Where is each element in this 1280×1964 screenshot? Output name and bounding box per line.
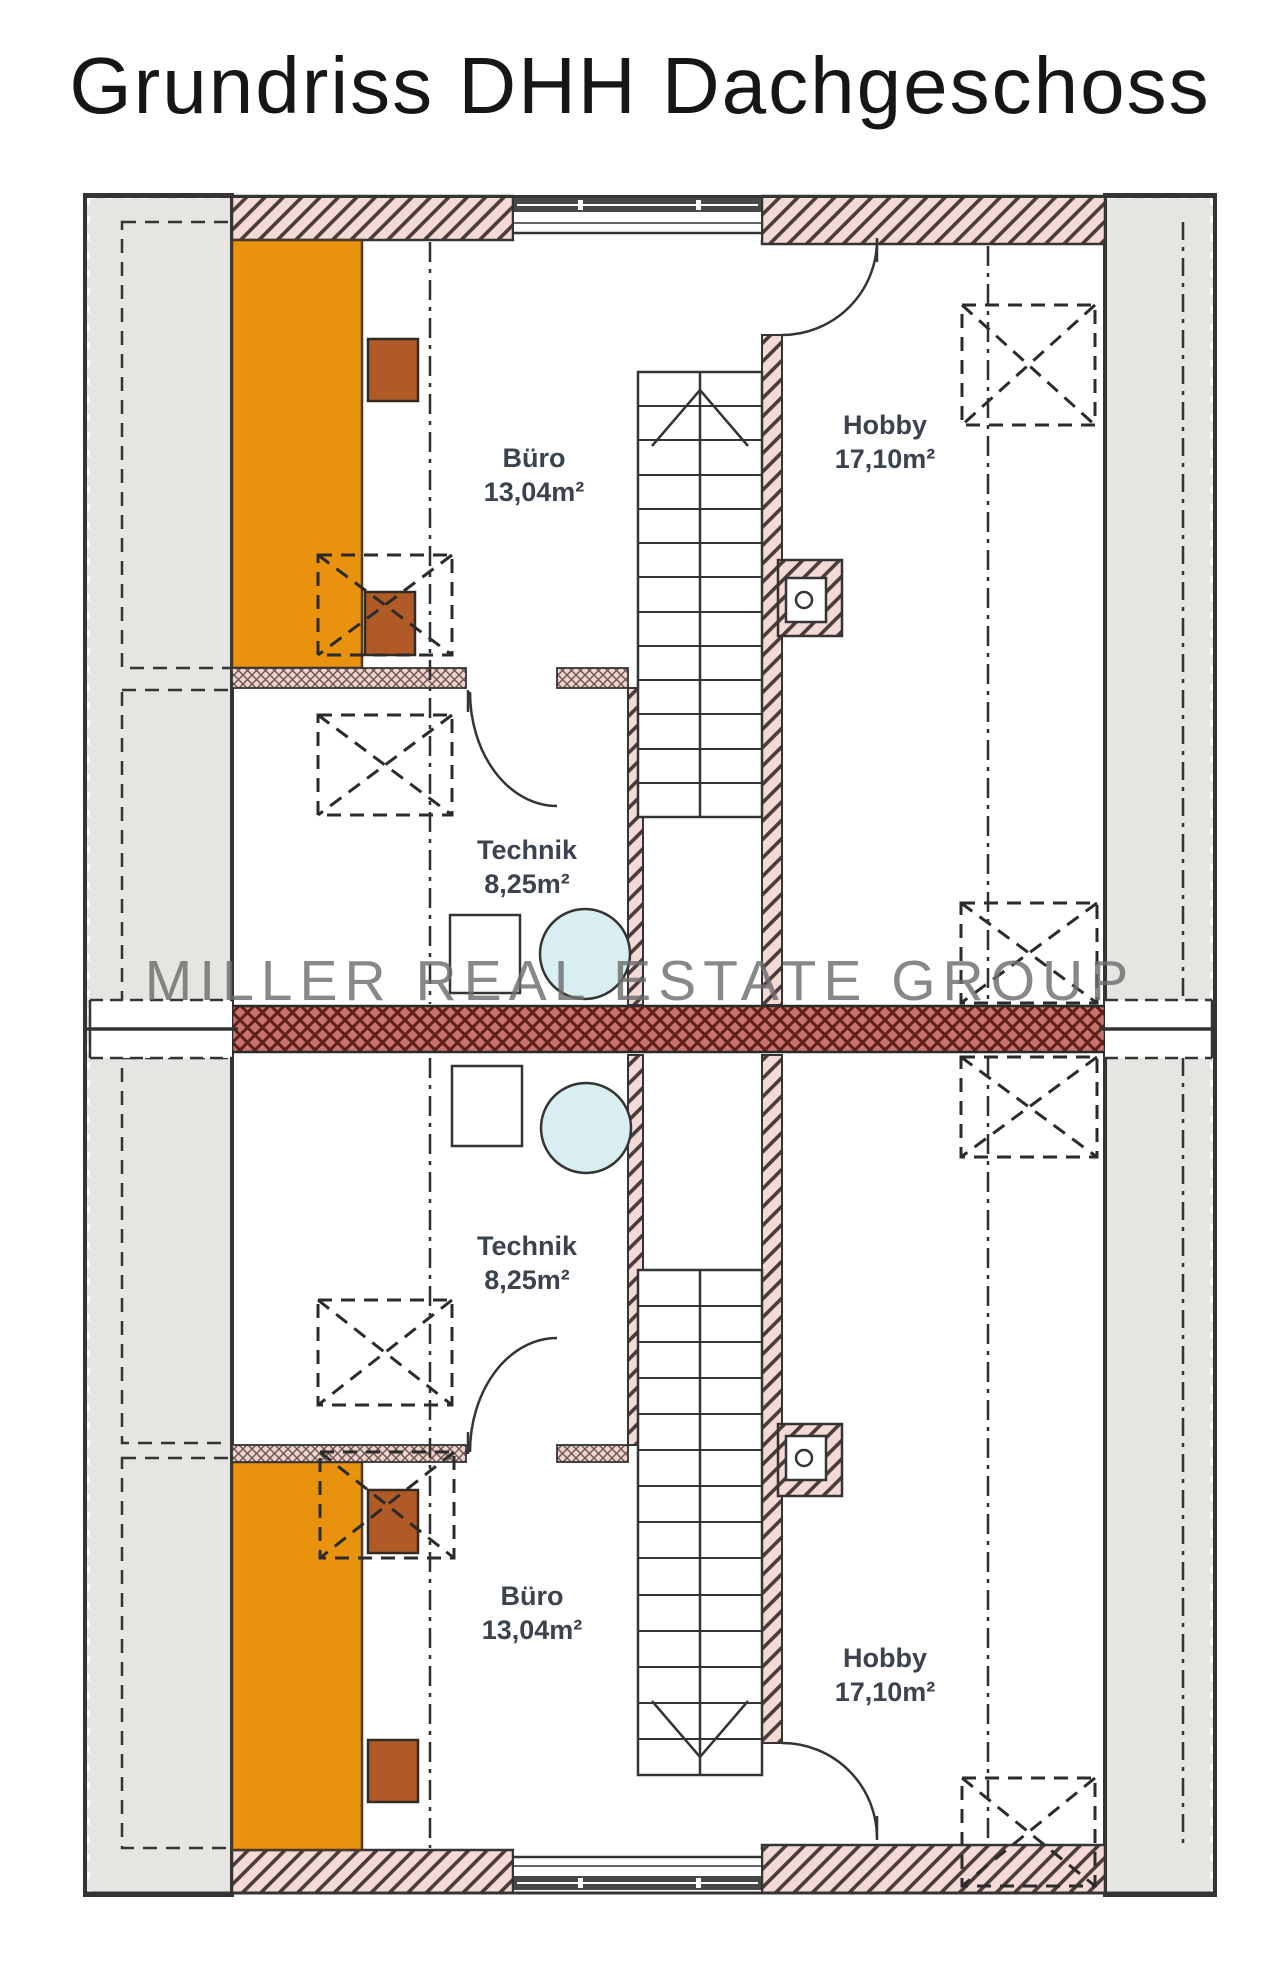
room-label-technik-upper: Technik8,25m² [477,833,577,901]
top-exterior-wall [85,196,1215,244]
room-area: 8,25m² [477,867,577,901]
orange-gable-strip-lower [232,1462,362,1850]
room-name: Hobby [843,1643,927,1673]
room-area: 13,04m² [484,475,585,509]
party-wall-right-cap [1099,1000,1215,1058]
bottom-exterior-wall [85,1845,1215,1893]
room-label-hobby-upper: Hobby17,10m² [835,408,936,476]
chimney-lower [778,1424,842,1496]
skylight-hobby-lower-top [961,1057,1097,1157]
chimney-upper [778,560,842,636]
staircase-lower [638,1270,762,1775]
room-name: Büro [500,1581,563,1611]
room-label-hobby-lower: Hobby17,10m² [835,1641,936,1709]
room-name: Büro [502,443,565,473]
bottom-window [513,1845,762,1893]
stair-side-wall-upper [762,335,782,1005]
skylight-hobby-upper-bottom [961,903,1097,1003]
room-area: 8,25m² [477,1263,577,1297]
room-area: 13,04m² [482,1613,583,1647]
room-label-buero-upper: Büro13,04m² [484,441,585,509]
room-area: 17,10m² [835,1675,936,1709]
roof-support-block [368,339,418,401]
door-technik-lower [468,1338,557,1454]
skylight-technik-lower [318,1300,452,1405]
party-wall-divider [85,1000,1215,1058]
floorplan-page: { "title": "Grundriss DHH Dachgeschoss",… [0,0,1280,1964]
door-technik-upper [468,690,557,806]
lower-unit [232,1055,1097,1886]
party-wall-left-cap [85,1000,238,1058]
water-tank-lower [452,1066,631,1173]
orange-gable-strip-upper [232,240,362,668]
room-area: 17,10m² [835,442,936,476]
room-name: Technik [477,1231,577,1261]
skylight-hobby-upper-top [962,305,1095,425]
skylight-technik-upper [318,715,452,815]
top-window [513,196,762,244]
room-label-buero-lower: Büro13,04m² [482,1579,583,1647]
room-name: Technik [477,835,577,865]
room-label-technik-lower: Technik8,25m² [477,1229,577,1297]
door-hobby-lower [782,1743,877,1840]
upper-unit [232,238,1097,1005]
floorplan-drawing [0,0,1280,1964]
roof-support-block [368,1740,418,1802]
room-name: Hobby [843,410,927,440]
stair-side-wall-lower [762,1055,782,1743]
door-hobby-upper [782,238,877,335]
staircase-upper [638,372,762,817]
water-tank-upper [450,909,630,999]
